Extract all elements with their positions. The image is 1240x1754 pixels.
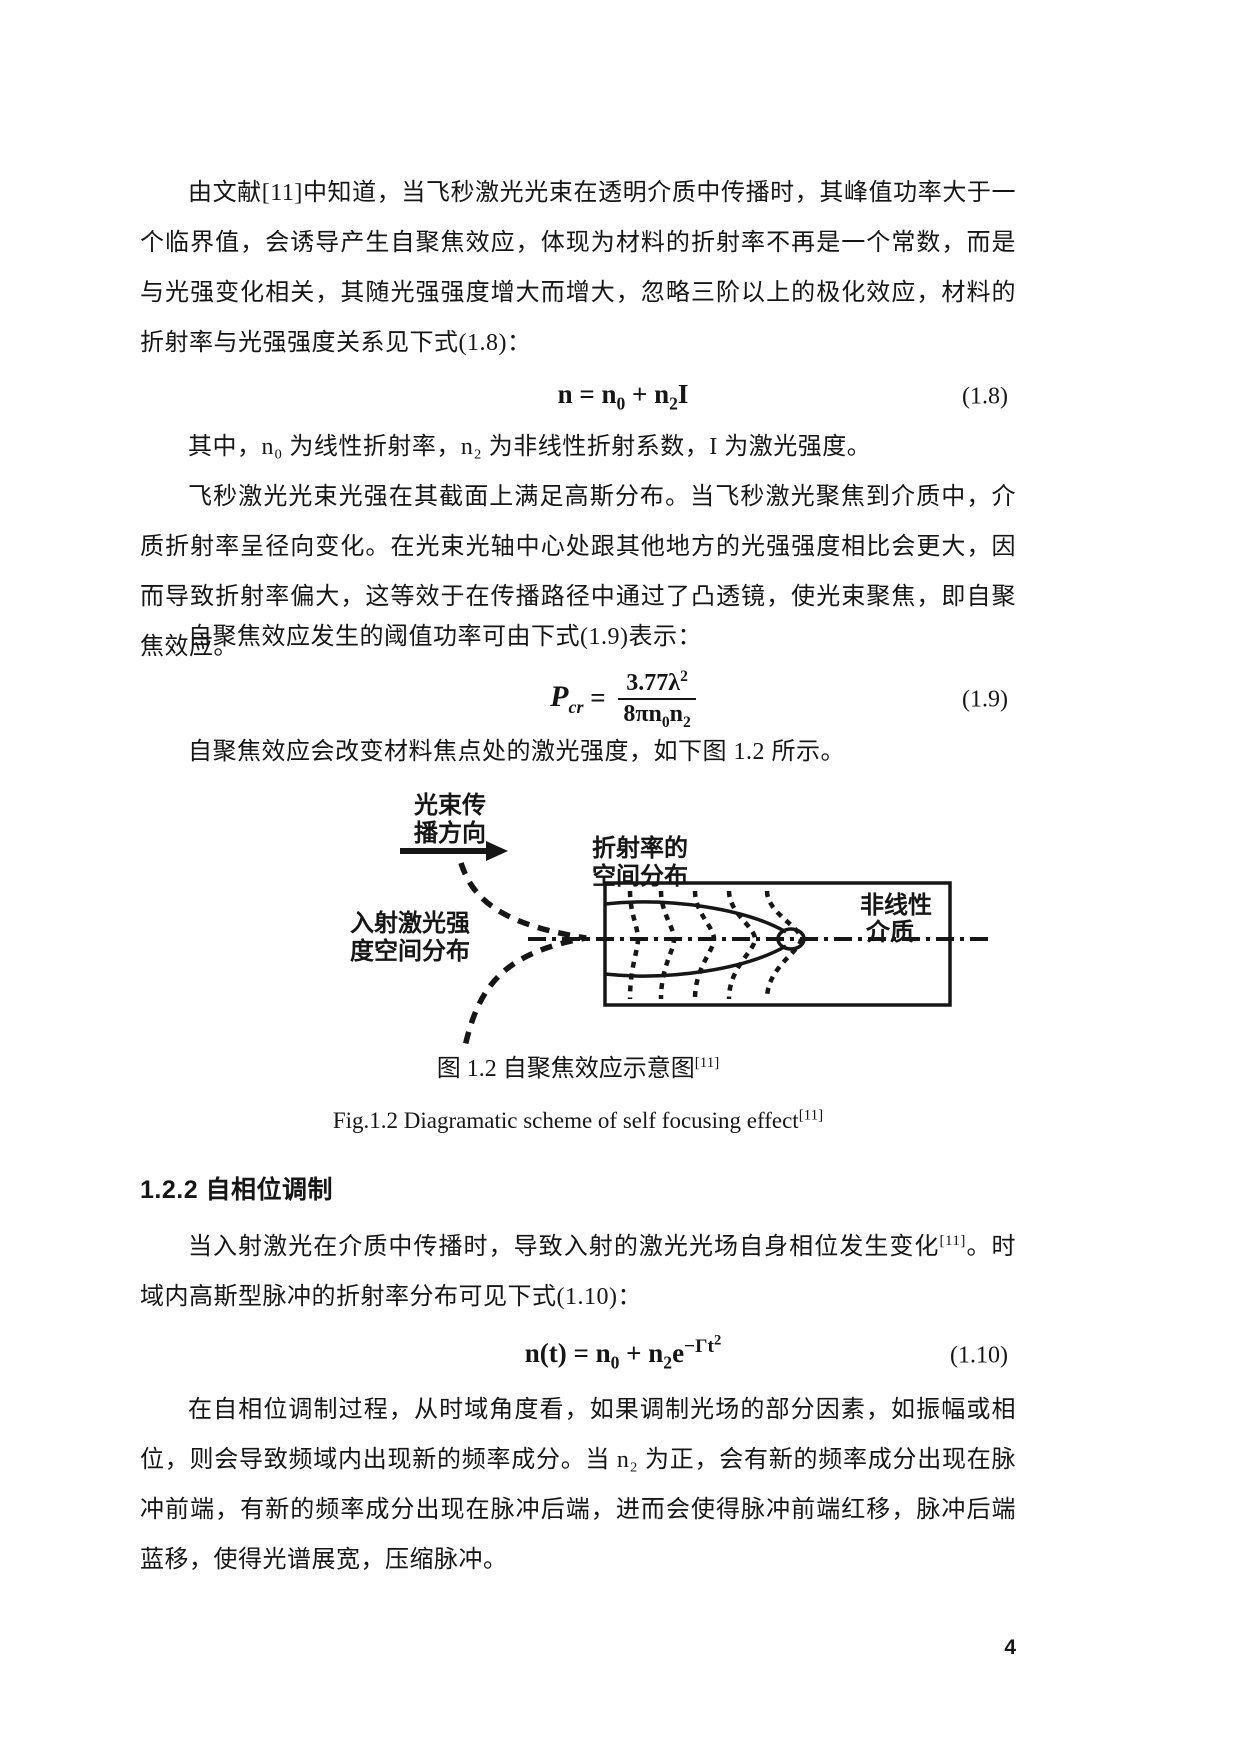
paragraph-figure-lead-in: 自聚焦效应会改变材料焦点处的激光强度，如下图 1.2 所示。 (140, 727, 1016, 777)
document-page: 由文献[11]中知道，当飞秒激光光束在透明介质中传播时，其峰值功率大于一个临界值… (0, 0, 1240, 1754)
equation-1-10-body: n(t) = n0 + n2e−Γt2 (525, 1338, 722, 1373)
incident-intensity-label-line2: 度空间分布 (350, 937, 470, 965)
paragraph-intro-self-focusing: 由文献[11]中知道，当飞秒激光光束在透明介质中传播时，其峰值功率大于一个临界值… (140, 168, 1016, 368)
caption-cn-reference: [11] (695, 1055, 719, 1071)
figure-self-focusing-diagram: 光束传 播方向 折射率的 空间分布 非线性 介质 (330, 775, 1030, 1065)
equation-1-9-body: Pcr = 3.77λ28πn0n2 (550, 668, 696, 732)
figure-caption-english: Fig.1.2 Diagramatic scheme of self focus… (140, 1104, 1016, 1138)
incident-intensity-gaussian-curve (461, 863, 586, 1051)
beam-direction-label-line1: 光束传 (413, 792, 486, 819)
refractive-index-label-line1: 折射率的 (592, 834, 688, 862)
equation-1-9-number: (1.9) (962, 687, 1008, 714)
equation-1-10: n(t) = n0 + n2e−Γt2 (1.10) (140, 1328, 1016, 1384)
equation-1-8: n = n0 + n2I (1.8) (140, 372, 1016, 422)
caption-en-reference: [11] (799, 1107, 823, 1123)
paragraph-symbol-definitions: 其中，n₀ 为线性折射率，n₂ 为非线性折射系数，I 为激光强度。 (140, 422, 1016, 472)
equation-1-10-number: (1.10) (950, 1343, 1008, 1370)
figure-caption-chinese: 图 1.2 自聚焦效应示意图[11] (140, 1052, 1016, 1086)
paragraph-self-phase-modulation-intro: 当入射激光在介质中传播时，导致入射的激光光场自身相位发生变化[11]。时域内高斯… (140, 1222, 1016, 1322)
citation-11-sup: [11] (939, 1233, 965, 1249)
equation-1-8-number: (1.8) (962, 384, 1008, 411)
page-number: 4 (140, 1636, 1016, 1660)
nonlinear-medium-label-line1: 非线性 (860, 892, 932, 919)
incident-intensity-label-line1: 入射激光强 (350, 909, 470, 937)
beam-direction-label-line2: 播方向 (414, 819, 486, 847)
paragraph-spm-frequency-components: 在自相位调制过程，从时域角度看，如果调制光场的部分因素，如振幅或相位，则会导致频… (140, 1385, 1016, 1585)
equation-1-8-body: n = n0 + n2I (558, 379, 689, 414)
section-heading-1-2-2: 1.2.2 自相位调制 (140, 1168, 1016, 1212)
paragraph-threshold-power: 自聚焦效应发生的阈值功率可由下式(1.9)表示： (140, 612, 1016, 662)
nonlinear-medium-label-line2: 介质 (865, 919, 914, 946)
